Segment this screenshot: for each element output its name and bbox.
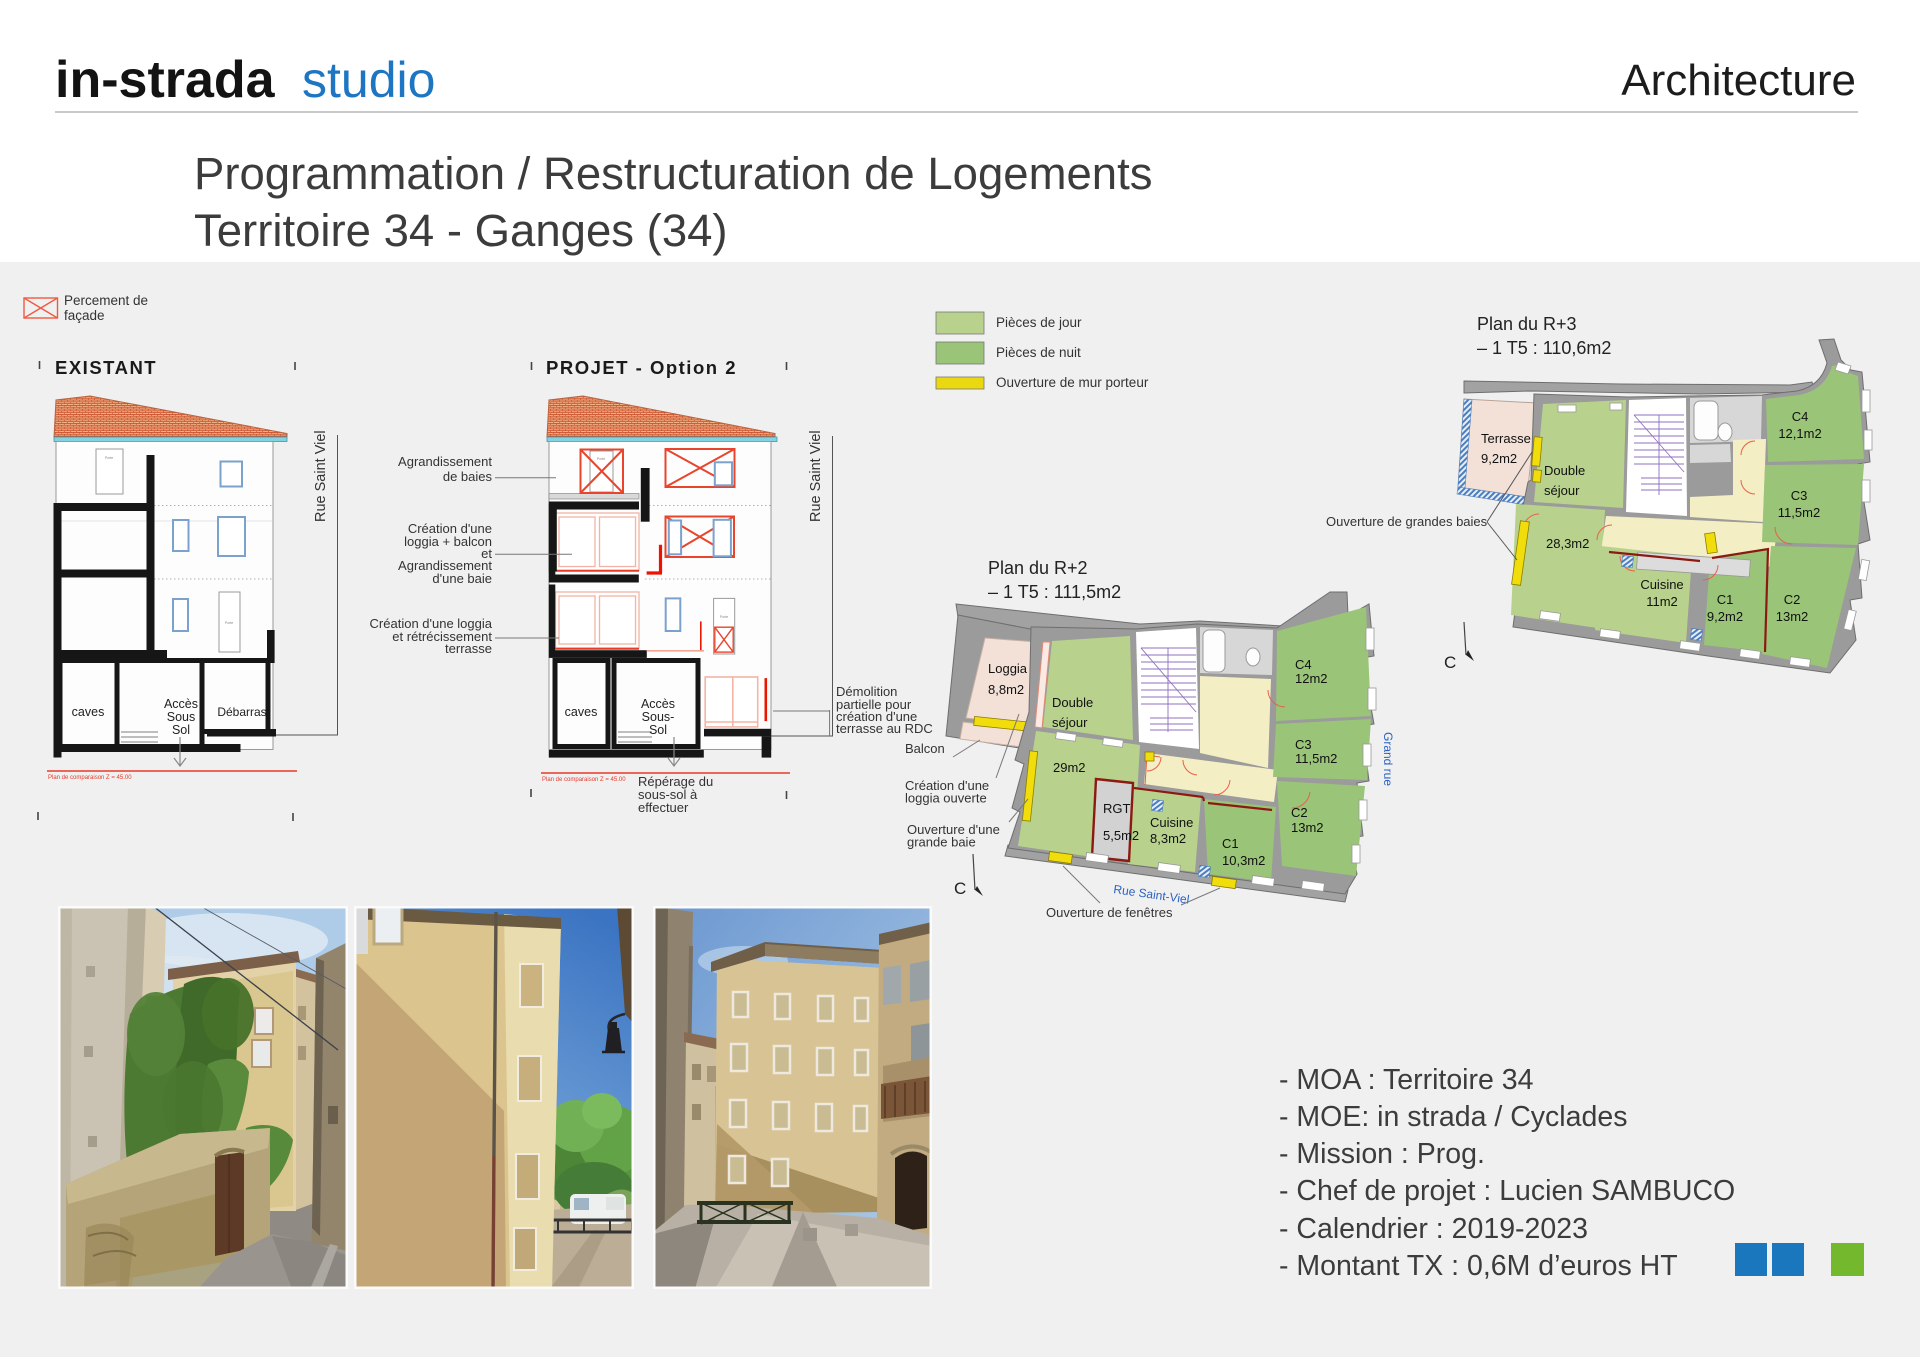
svg-text:Accès: Accès — [164, 697, 198, 711]
svg-text:Agrandissement: Agrandissement — [398, 454, 492, 469]
svg-text:- Mission : Prog.: - Mission : Prog. — [1279, 1138, 1485, 1170]
svg-text:– 1 T5 : 111,5m2: – 1 T5 : 111,5m2 — [988, 582, 1121, 602]
svg-text:caves: caves — [72, 705, 105, 719]
svg-text:Double: Double — [1052, 695, 1093, 710]
svg-text:- Calendrier : 2019-2023: - Calendrier : 2019-2023 — [1279, 1213, 1588, 1245]
svg-text:28,3m2: 28,3m2 — [1546, 536, 1589, 551]
svg-text:5,5m2: 5,5m2 — [1103, 828, 1139, 843]
svg-text:13m2: 13m2 — [1776, 609, 1809, 624]
svg-text:Pièces de jour: Pièces de jour — [996, 315, 1082, 330]
svg-text:façade: façade — [64, 308, 105, 323]
svg-text:Grand rue: Grand rue — [1381, 732, 1395, 786]
svg-text:- MOE: in strada / Cyclades: - MOE: in strada / Cyclades — [1279, 1101, 1627, 1133]
svg-text:C4: C4 — [1792, 409, 1809, 424]
svg-text:RGT: RGT — [1103, 801, 1131, 816]
svg-text:séjour: séjour — [1052, 715, 1088, 730]
svg-text:Terrasse: Terrasse — [1481, 431, 1531, 446]
svg-text:de baies: de baies — [443, 469, 493, 484]
svg-text:terrasse au RDC: terrasse au RDC — [836, 721, 933, 736]
svg-text:Ouverture de fenêtres: Ouverture de fenêtres — [1046, 905, 1173, 920]
svg-text:8,3m2: 8,3m2 — [1150, 831, 1186, 846]
svg-text:C2: C2 — [1784, 592, 1801, 607]
svg-text:d'une baie: d'une baie — [432, 571, 492, 586]
svg-text:Rue Saint Viel: Rue Saint Viel — [808, 430, 824, 522]
svg-text:Plan de comparaison Z = 45.00: Plan de comparaison Z = 45.00 — [48, 775, 132, 781]
svg-text:C3: C3 — [1791, 488, 1808, 503]
svg-text:C2: C2 — [1291, 805, 1308, 820]
svg-text:Cuisine: Cuisine — [1640, 577, 1683, 592]
svg-text:effectuer: effectuer — [638, 800, 689, 815]
svg-text:9,2m2: 9,2m2 — [1707, 609, 1743, 624]
svg-text:29m2: 29m2 — [1053, 760, 1086, 775]
svg-text:12,1m2: 12,1m2 — [1778, 426, 1821, 441]
svg-text:Pièces de nuit: Pièces de nuit — [996, 345, 1081, 360]
svg-text:PROJET - Option 2: PROJET - Option 2 — [546, 357, 737, 378]
svg-text:- Montant TX : 0,6M d’euros HT: - Montant TX : 0,6M d’euros HT — [1279, 1250, 1678, 1282]
svg-text:C: C — [1444, 653, 1456, 672]
svg-text:grande baie: grande baie — [907, 835, 976, 850]
svg-text:- MOA : Territoire 34: - MOA : Territoire 34 — [1279, 1064, 1534, 1096]
svg-text:12m2: 12m2 — [1295, 671, 1328, 686]
svg-text:Loggia: Loggia — [988, 661, 1028, 676]
svg-text:séjour: séjour — [1544, 483, 1580, 498]
svg-text:– 1 T5 : 110,6m2: – 1 T5 : 110,6m2 — [1477, 338, 1611, 358]
svg-text:Architecture: Architecture — [1621, 56, 1856, 105]
svg-text:10,3m2: 10,3m2 — [1222, 853, 1265, 868]
svg-text:C3: C3 — [1295, 737, 1312, 752]
svg-text:EXISTANT: EXISTANT — [55, 357, 157, 378]
svg-text:Rue Saint Viel: Rue Saint Viel — [313, 430, 329, 522]
svg-text:studio: studio — [302, 52, 435, 108]
svg-text:Plan de comparaison Z = 45.00: Plan de comparaison Z = 45.00 — [542, 777, 626, 783]
svg-text:Percement de: Percement de — [64, 293, 148, 308]
svg-text:Plan du R+3: Plan du R+3 — [1477, 314, 1577, 334]
svg-text:Porte: Porte — [105, 456, 113, 460]
svg-text:Accès: Accès — [641, 697, 675, 711]
svg-text:Ouverture de grandes baies: Ouverture de grandes baies — [1326, 514, 1488, 529]
svg-text:Territoire 34 - Ganges (34): Territoire 34 - Ganges (34) — [194, 205, 728, 256]
svg-text:11m2: 11m2 — [1646, 594, 1678, 609]
svg-text:11,5m2: 11,5m2 — [1295, 751, 1337, 766]
svg-text:Sous: Sous — [167, 710, 196, 724]
svg-text:C4: C4 — [1295, 657, 1312, 672]
svg-text:C1: C1 — [1717, 592, 1734, 607]
svg-text:terrasse: terrasse — [445, 641, 492, 656]
svg-text:Sol: Sol — [649, 723, 667, 737]
svg-text:in-strada: in-strada — [55, 51, 276, 109]
svg-text:Cuisine: Cuisine — [1150, 815, 1193, 830]
svg-text:loggia + balcon: loggia + balcon — [404, 534, 492, 549]
svg-text:C: C — [954, 879, 966, 898]
svg-text:caves: caves — [565, 705, 598, 719]
svg-text:Sol: Sol — [172, 723, 190, 737]
svg-text:Porte: Porte — [720, 615, 728, 619]
svg-text:11,5m2: 11,5m2 — [1778, 505, 1820, 520]
svg-text:- Chef de projet : Lucien SAMB: - Chef de projet : Lucien SAMBUCO — [1279, 1175, 1735, 1207]
svg-text:Balcon: Balcon — [905, 741, 945, 756]
svg-text:Sous-: Sous- — [642, 710, 675, 724]
svg-text:loggia ouverte: loggia ouverte — [905, 791, 987, 806]
svg-text:Porte: Porte — [225, 621, 233, 625]
svg-text:Programmation / Restructuratio: Programmation / Restructuration de Logem… — [194, 148, 1153, 199]
svg-text:13m2: 13m2 — [1291, 820, 1324, 835]
svg-text:Ouverture de mur porteur: Ouverture de mur porteur — [996, 375, 1149, 390]
svg-text:9,2m2: 9,2m2 — [1481, 451, 1517, 466]
svg-text:Plan du R+2: Plan du R+2 — [988, 558, 1088, 578]
svg-text:C1: C1 — [1222, 836, 1239, 851]
svg-text:Double: Double — [1544, 463, 1585, 478]
svg-text:8,8m2: 8,8m2 — [988, 682, 1024, 697]
svg-text:Débarras: Débarras — [217, 705, 266, 719]
svg-text:Porte: Porte — [597, 457, 605, 461]
